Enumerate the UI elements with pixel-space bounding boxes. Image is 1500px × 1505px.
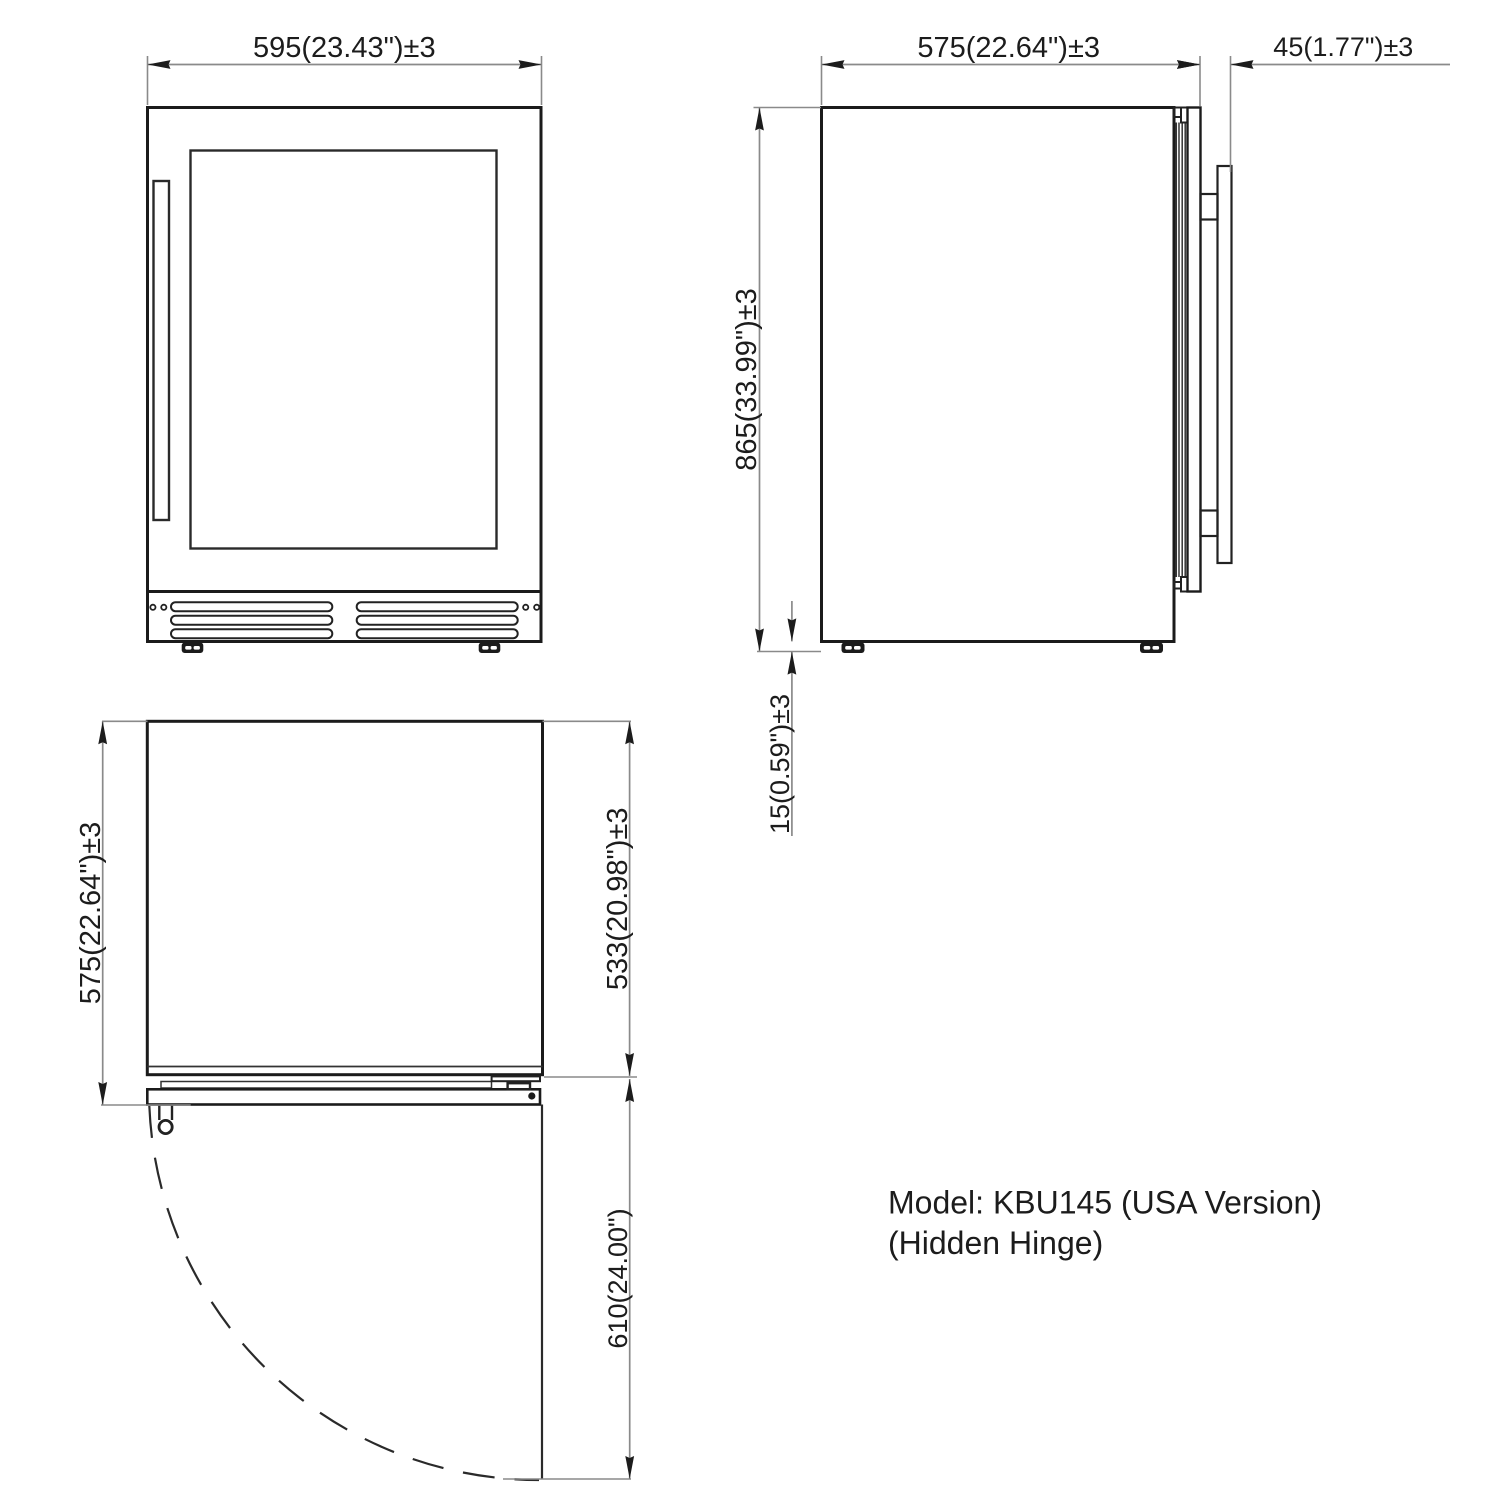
svg-text:575(22.64")±3: 575(22.64")±3 bbox=[917, 32, 1100, 64]
svg-text:865(33.99")±3: 865(33.99")±3 bbox=[731, 288, 763, 471]
svg-text:610(24.00"): 610(24.00") bbox=[603, 1208, 633, 1348]
svg-text:533(20.98")±3: 533(20.98")±3 bbox=[602, 807, 634, 990]
svg-text:45(1.77")±3: 45(1.77")±3 bbox=[1273, 32, 1413, 62]
svg-text:Model: KBU145 (USA Version): Model: KBU145 (USA Version) bbox=[888, 1185, 1322, 1221]
svg-text:575(22.64")±3: 575(22.64")±3 bbox=[75, 822, 107, 1005]
svg-text:(Hidden Hinge): (Hidden Hinge) bbox=[888, 1225, 1103, 1261]
svg-text:595(23.43")±3: 595(23.43")±3 bbox=[253, 32, 436, 64]
svg-text:15(0.59")±3: 15(0.59")±3 bbox=[765, 694, 795, 834]
